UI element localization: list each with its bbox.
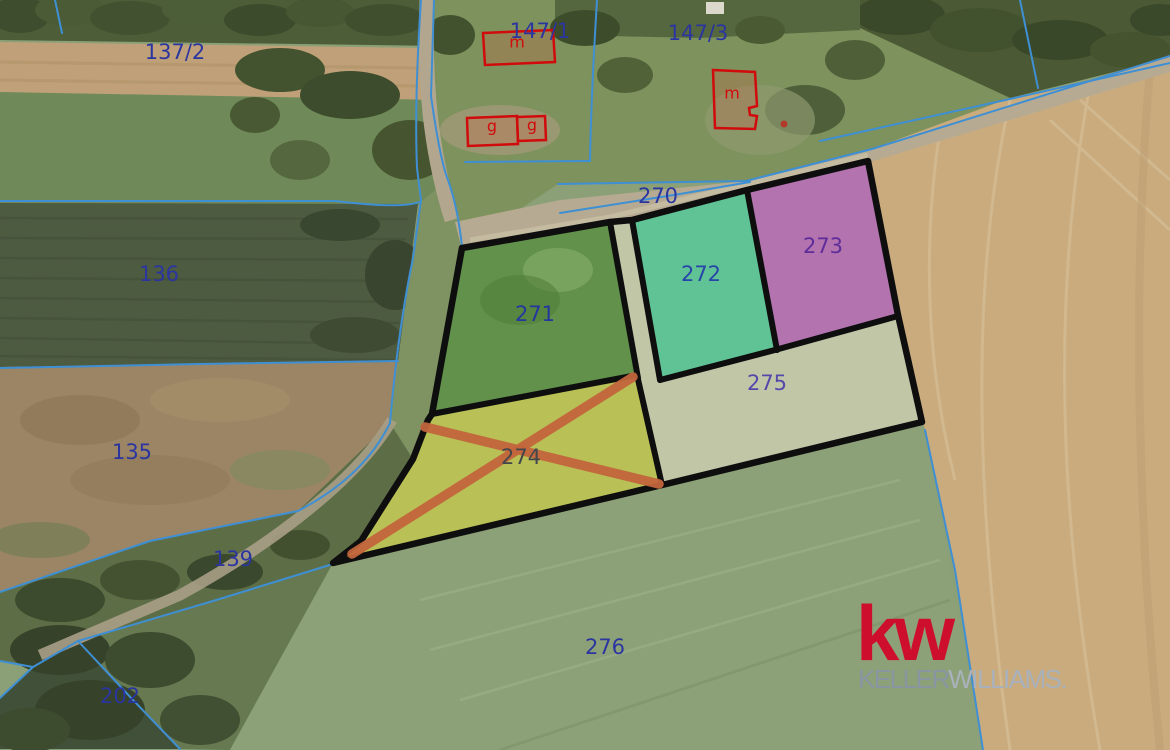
keller-williams-wordmark: KELLERWILLIAMS. (858, 664, 1066, 695)
parcel-label-137-2: 137/2 (145, 40, 206, 64)
parcel-label-147-3: 147/3 (668, 21, 729, 45)
wordmark-dot: . (1061, 664, 1067, 694)
parcel-label-270: 270 (638, 184, 678, 208)
parcel-label-202: 202 (100, 684, 140, 708)
parcel-label-135: 135 (112, 440, 152, 464)
map-canvas: 137/2147/1147/32701362712722732751352741… (0, 0, 1170, 750)
building-label-g-1: g (487, 117, 497, 136)
parcel-label-139: 139 (213, 547, 253, 571)
parcel-label-276: 276 (585, 635, 625, 659)
parcel-label-274: 274 (501, 445, 541, 469)
building-label-g-2: g (527, 116, 537, 135)
building-label-m-0: m (509, 33, 525, 52)
kw-logo: kw (856, 594, 950, 672)
keller-text: KELLER (858, 664, 948, 694)
building-label-m-3: m (724, 84, 740, 103)
parcel-label-136: 136 (139, 262, 179, 286)
parcel-label-272: 272 (681, 262, 721, 286)
williams-text: WILLIAMS (948, 664, 1060, 694)
parcel-label-275: 275 (747, 371, 787, 395)
parcel-label-271: 271 (515, 302, 555, 326)
parcel-label-273: 273 (803, 234, 843, 258)
